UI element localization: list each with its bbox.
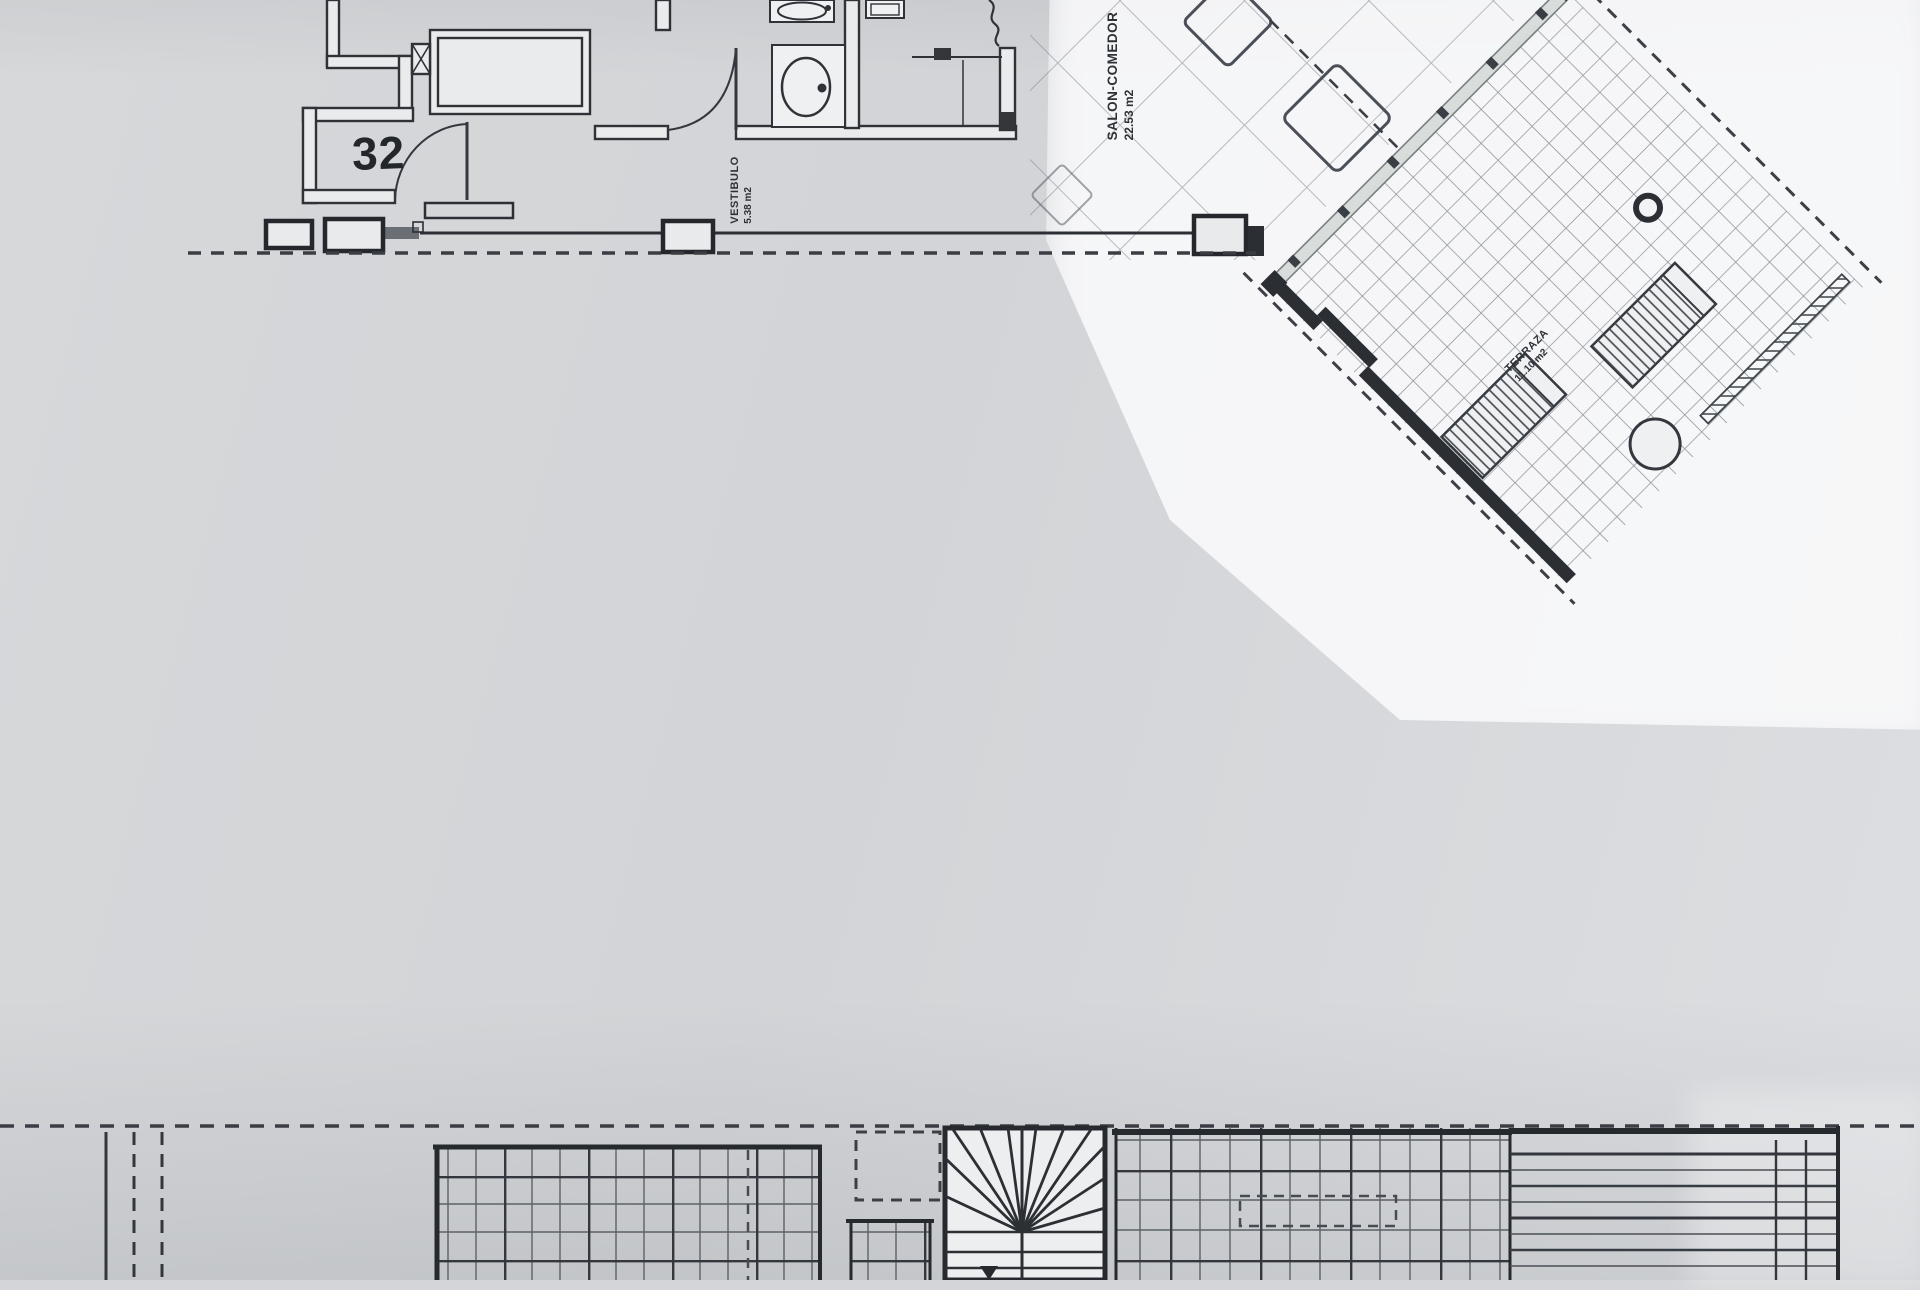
toilet-icon	[772, 45, 845, 127]
left-plan-fragment	[106, 1132, 162, 1280]
roof-grid-a	[433, 1146, 822, 1280]
room-label-salon-comedor: SALON-COMEDOR 22.53 m2	[1105, 12, 1137, 141]
bathroom-fixtures	[770, 0, 845, 127]
stair	[945, 1128, 1105, 1280]
sink-icon	[770, 0, 834, 22]
wardrobe-icon	[430, 30, 590, 114]
floor-plan-linework	[0, 0, 1920, 1280]
roof-grid-sub	[846, 1220, 934, 1280]
scanned-floorplan-sheet: { "sheet": { "unit_number": "32", "rooms…	[0, 0, 1920, 1280]
lower-plan	[0, 1126, 1920, 1280]
room-name: VESTIBULO	[729, 156, 743, 223]
upper-plan-walls	[303, 0, 1016, 203]
break-line-squiggle	[989, 0, 999, 46]
unit-number-label: 32	[351, 125, 406, 181]
roof-grid-c	[1112, 1128, 1512, 1280]
room-label-vestibulo: VESTIBULO 5.38 m2	[729, 156, 755, 223]
duct-shaft-icon	[412, 44, 430, 74]
hob-icon	[934, 48, 951, 60]
room-name: SALON-COMEDOR	[1105, 12, 1122, 141]
room-area: 5.38 m2	[743, 156, 756, 223]
roof-decking	[1510, 1126, 1840, 1280]
room-area: 22.53 m2	[1122, 12, 1137, 141]
roof-opening-dashed	[856, 1132, 940, 1200]
